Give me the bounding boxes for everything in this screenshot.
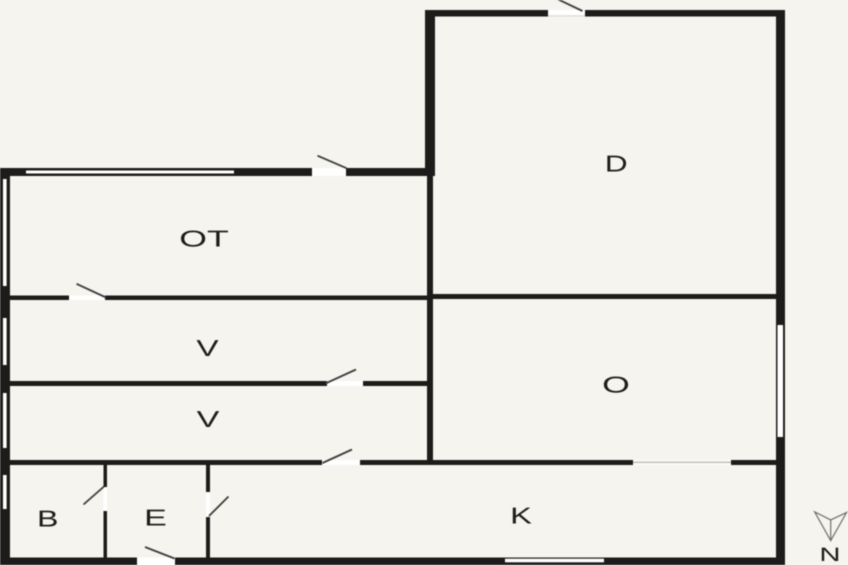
svg-text:D: D [605,151,628,177]
svg-text:K: K [510,503,533,529]
svg-text:O: O [602,372,630,398]
svg-text:N: N [819,544,840,565]
svg-text:B: B [37,506,58,532]
svg-text:OT: OT [179,226,229,252]
svg-text:V: V [197,406,221,432]
svg-text:V: V [196,335,219,361]
svg-text:E: E [144,504,167,530]
